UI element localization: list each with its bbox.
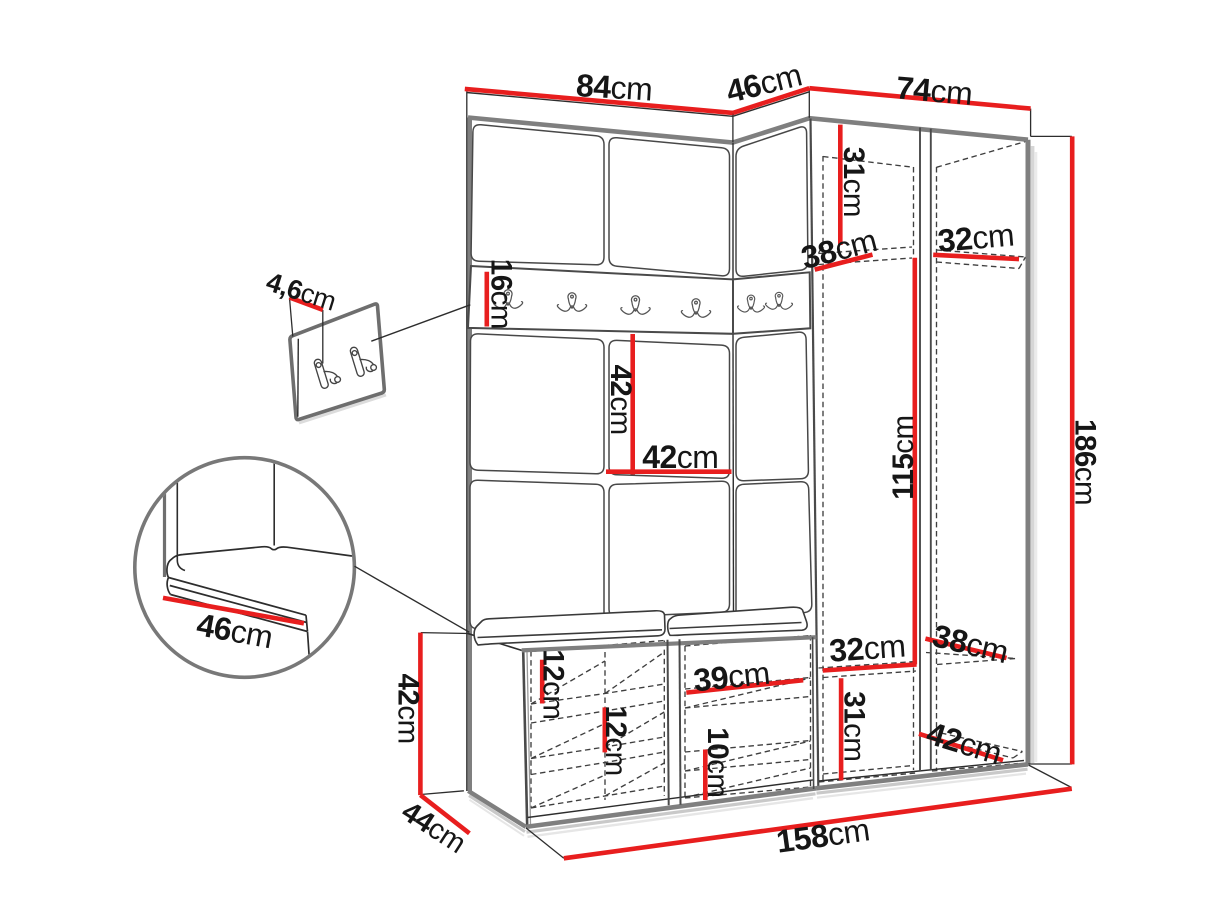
svg-text:84cm: 84cm — [575, 67, 653, 108]
svg-text:115cm: 115cm — [887, 415, 920, 499]
svg-text:31cm: 31cm — [837, 147, 870, 217]
svg-text:186cm: 186cm — [1069, 419, 1102, 505]
svg-text:42cm: 42cm — [392, 674, 425, 744]
svg-text:32cm: 32cm — [936, 216, 1015, 259]
svg-text:42cm: 42cm — [604, 365, 637, 435]
svg-text:10cm: 10cm — [701, 727, 734, 797]
svg-text:31cm: 31cm — [838, 691, 871, 761]
svg-text:32cm: 32cm — [828, 628, 907, 669]
svg-text:12cm: 12cm — [536, 649, 569, 719]
svg-text:42cm: 42cm — [642, 439, 718, 475]
svg-text:12cm: 12cm — [599, 706, 632, 776]
svg-text:74cm: 74cm — [895, 69, 974, 112]
svg-text:16cm: 16cm — [484, 259, 517, 329]
